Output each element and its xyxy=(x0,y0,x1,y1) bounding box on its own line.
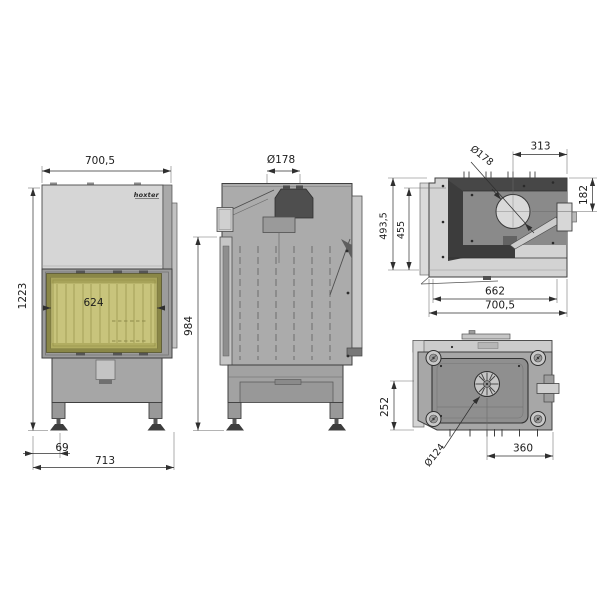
dim-leg-offset: 69 xyxy=(23,433,70,458)
foot-stem xyxy=(154,419,158,425)
adjustable-foot xyxy=(148,424,166,431)
bottom-view: 252 360 Ø124 xyxy=(379,331,559,470)
flue-damper-dome xyxy=(275,189,313,218)
door-glass-edge xyxy=(223,246,229,356)
dim-label-fan-to-right: 360 xyxy=(513,443,533,455)
dim-label-front-width-top: 700,5 xyxy=(85,155,115,167)
adjustable-foot xyxy=(50,424,68,431)
front-overhang-block xyxy=(217,208,233,232)
dim-label-depth-body: 455 xyxy=(396,221,407,239)
top-view-left-panel-edge xyxy=(420,183,429,275)
dim-front-width-top: 700,5 xyxy=(42,155,171,183)
base-recess-shadow xyxy=(99,380,112,385)
side-view: Ø178 xyxy=(183,154,362,431)
front-hood-side-edge xyxy=(163,185,172,269)
door-handle-bar xyxy=(462,334,510,339)
dim-label-fan-to-front: 252 xyxy=(379,397,391,417)
ash-drawer xyxy=(240,382,333,403)
dim-label-side-height: 984 xyxy=(183,316,195,336)
dim-label-flue-to-back: 182 xyxy=(578,185,590,205)
adjustable-foot xyxy=(226,424,244,431)
air-inlet-fan xyxy=(475,372,500,397)
foot-stem xyxy=(57,419,61,425)
rear-shield-bracket xyxy=(347,348,362,356)
side-outlet-nub xyxy=(572,212,577,222)
flue-collar-cylinder xyxy=(263,217,295,233)
front-leg-right xyxy=(149,403,162,419)
dome-bolt xyxy=(283,186,290,190)
front-insulation-band xyxy=(448,245,515,258)
dim-label-front-width-bottom: 713 xyxy=(95,455,115,467)
base-recess xyxy=(96,360,115,380)
dim-label-side-flue: Ø178 xyxy=(267,154,295,166)
dome-bolt xyxy=(296,186,303,190)
dim-label-flue-to-right: 313 xyxy=(530,141,550,153)
top-view: Ø178 313 182 493,5 455 xyxy=(379,141,598,318)
brand-logo-underline xyxy=(135,198,159,199)
foot-stem xyxy=(233,419,237,425)
side-leg-rear xyxy=(330,403,343,419)
foot-stem xyxy=(335,419,339,425)
foot-mount xyxy=(426,412,441,427)
dim-label-top-flue: Ø178 xyxy=(468,143,496,168)
dim-label-fan-diameter: Ø124 xyxy=(422,441,447,469)
fireplace-technical-drawing: 700,5 hoxter xyxy=(0,0,615,615)
foot-mount xyxy=(531,412,546,427)
dim-label-width-inner: 662 xyxy=(485,286,505,298)
firebox-top-baffle xyxy=(51,278,157,284)
foot-mount xyxy=(426,351,441,366)
rear-heat-shield xyxy=(352,196,362,348)
dim-front-width-bottom: 713 xyxy=(33,432,174,470)
side-outlet-box xyxy=(557,203,572,231)
ash-drawer-handle xyxy=(275,380,301,385)
foot-mount xyxy=(531,351,546,366)
frame-bar-plate xyxy=(478,343,498,349)
dim-label-glass-width: 624 xyxy=(83,297,103,309)
brand-logo: hoxter xyxy=(134,191,160,199)
dim-side-height: 984 xyxy=(183,237,224,431)
dim-label-width-total: 700,5 xyxy=(485,300,515,312)
front-view: 700,5 hoxter xyxy=(17,155,177,470)
side-leg-front xyxy=(228,403,241,419)
technical-drawing-page: 700,5 hoxter xyxy=(0,0,615,615)
adjustable-foot xyxy=(328,424,346,431)
glass-pane xyxy=(51,278,157,349)
door-handle-mark xyxy=(483,276,491,280)
dim-label-leg-offset: 69 xyxy=(55,442,68,454)
frame-offset-edge xyxy=(421,277,429,284)
back-wall-insulation xyxy=(448,179,567,192)
dim-label-depth-total: 493,5 xyxy=(379,212,390,239)
dim-label-front-height: 1223 xyxy=(17,283,29,310)
front-leg-left xyxy=(52,403,65,419)
dim-flue-to-right: 313 xyxy=(513,141,567,175)
dim-side-flue-diameter: Ø178 xyxy=(267,154,300,186)
frame-offset-edge xyxy=(421,281,498,284)
dim-fan-to-front: 252 xyxy=(379,381,414,430)
back-wall-fins xyxy=(464,172,535,179)
side-wall-sliver xyxy=(172,203,177,348)
